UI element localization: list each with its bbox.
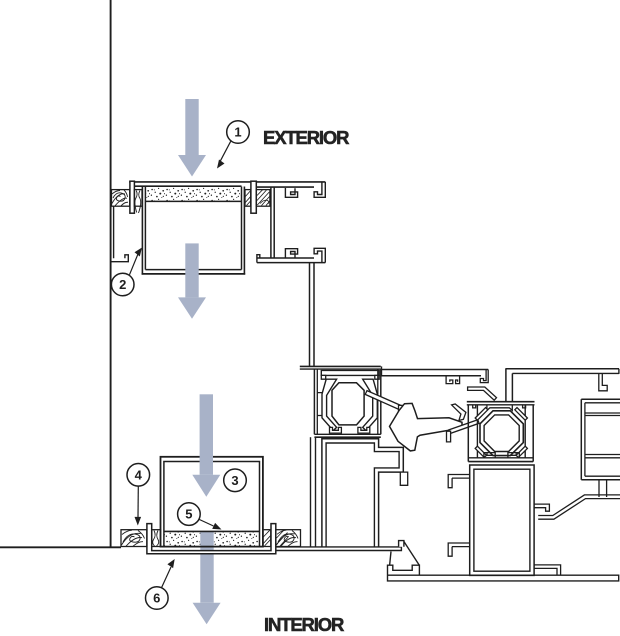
svg-text:4: 4 <box>135 467 143 482</box>
svg-text:2: 2 <box>119 277 126 292</box>
svg-text:1: 1 <box>234 125 241 140</box>
svg-text:5: 5 <box>185 507 192 522</box>
svg-text:6: 6 <box>153 591 160 606</box>
svg-text:3: 3 <box>231 473 238 488</box>
